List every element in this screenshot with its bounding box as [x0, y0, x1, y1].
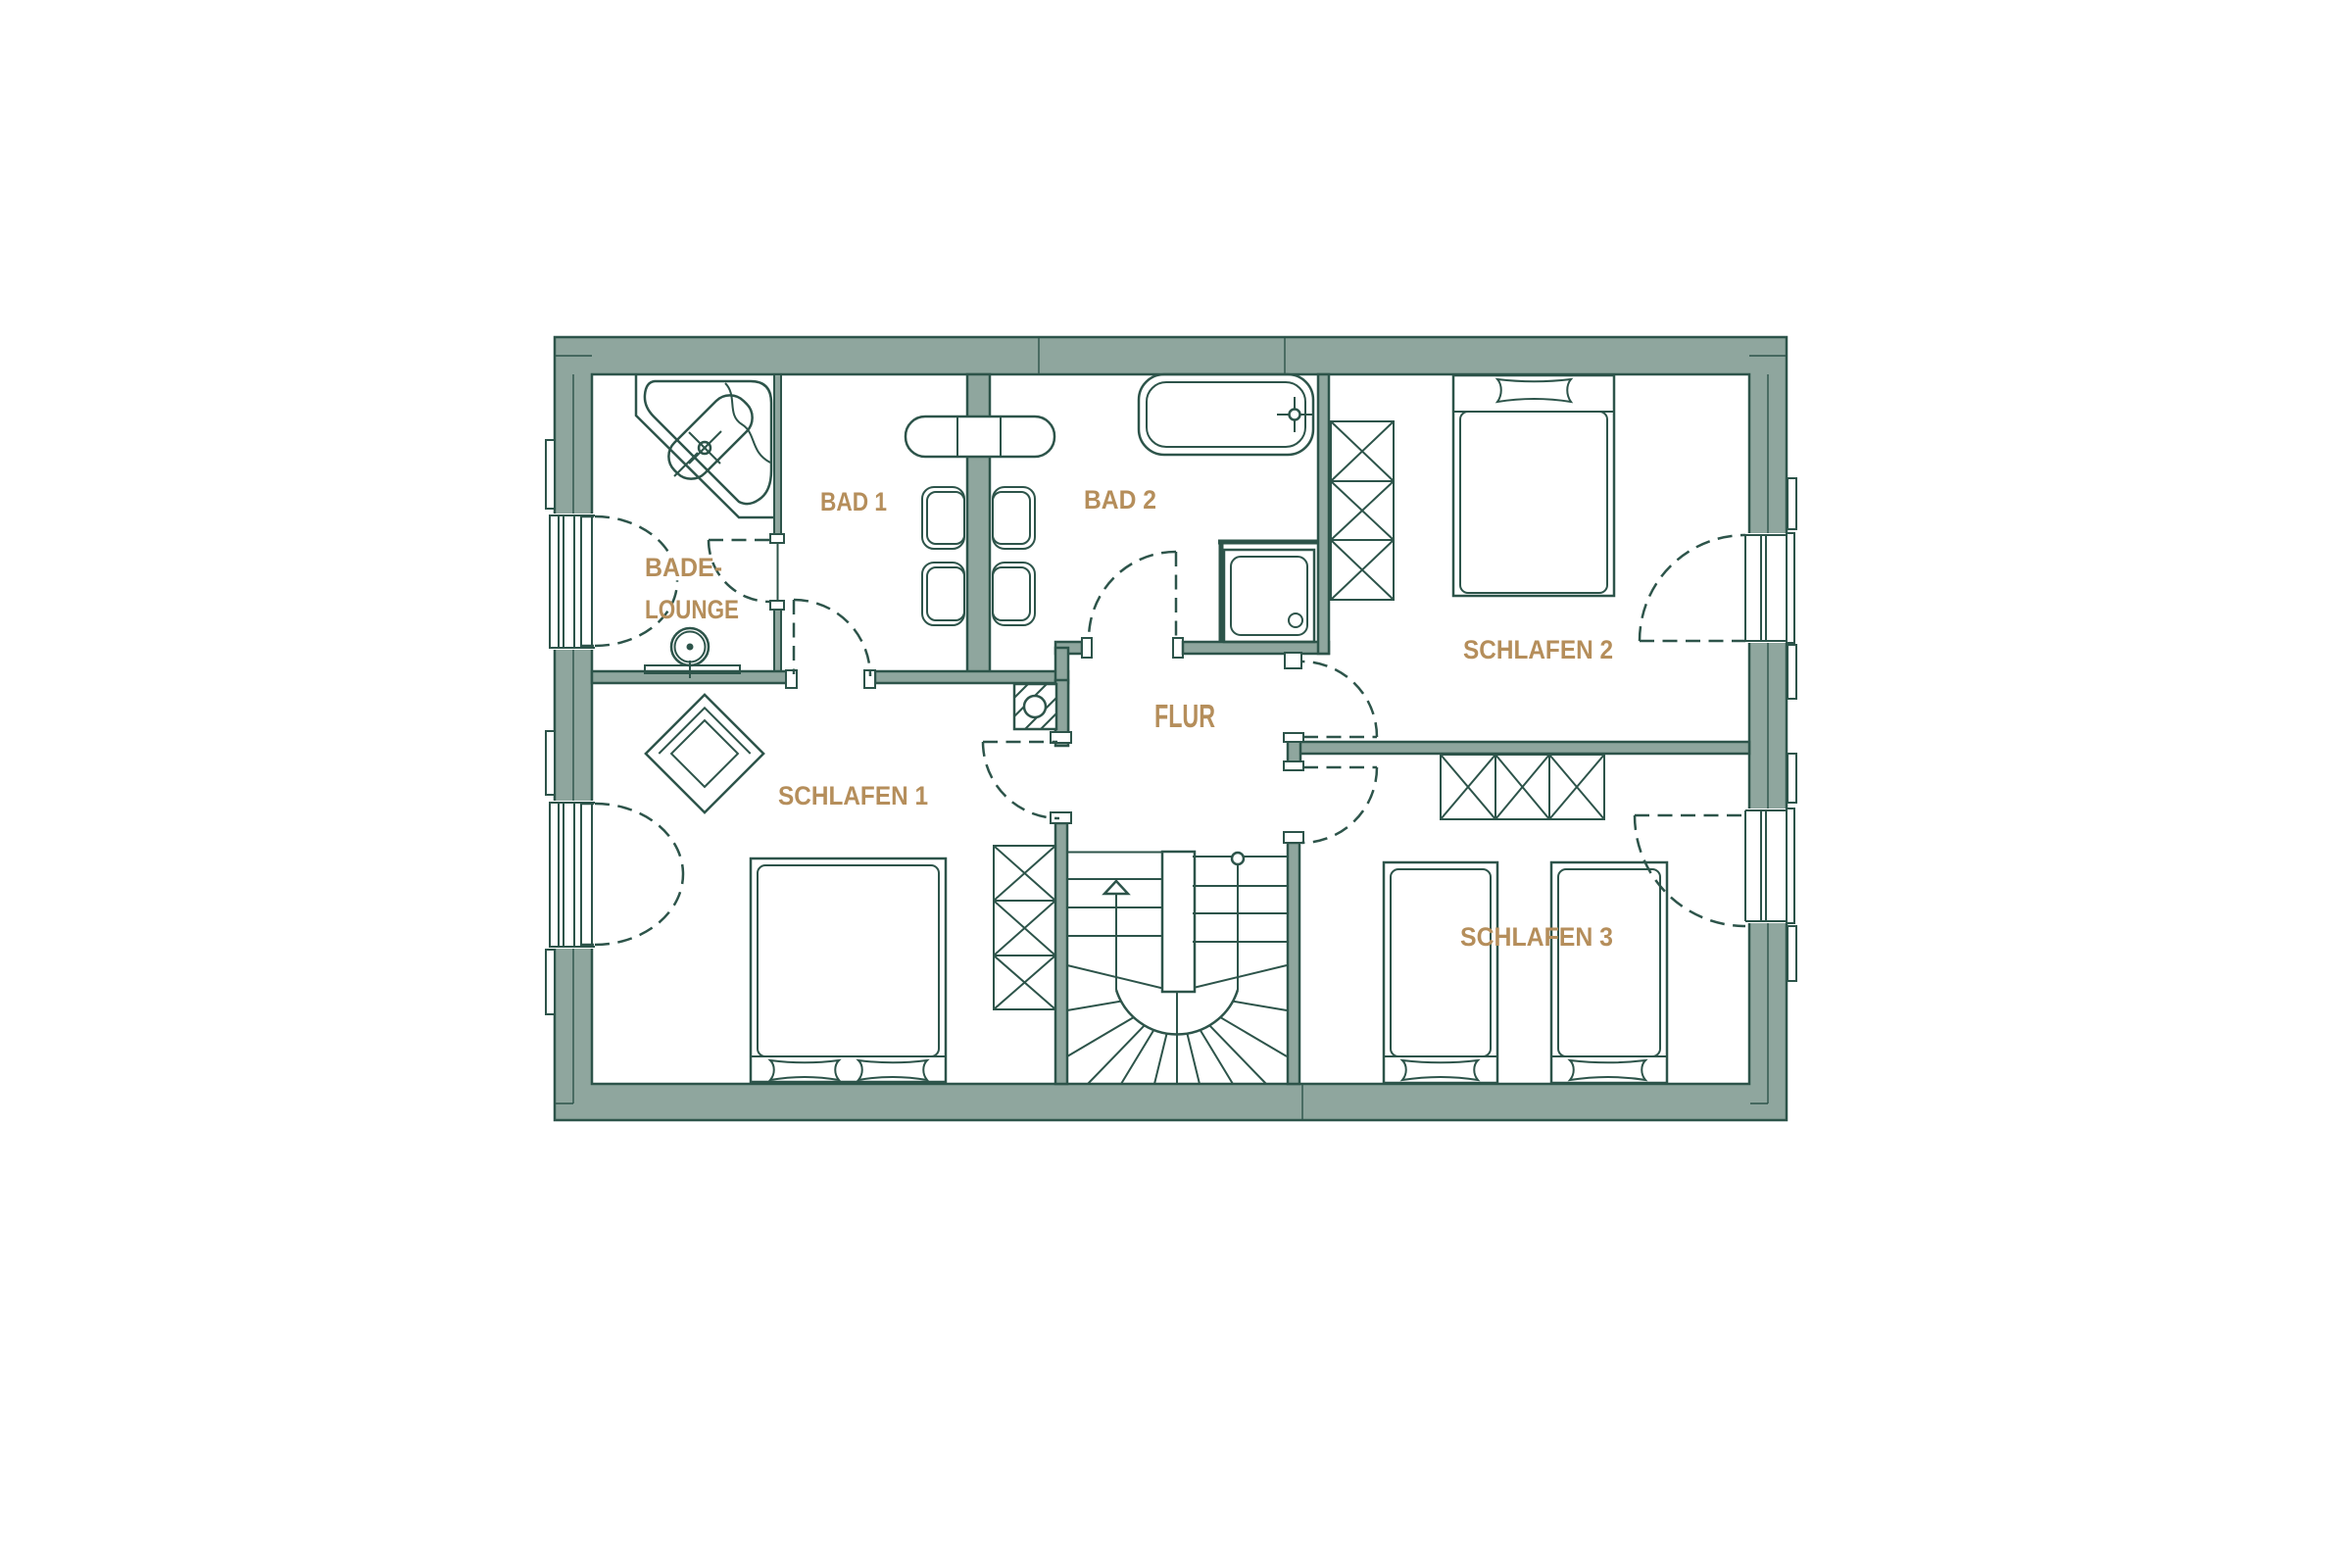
svg-text:SCHLAFEN 2: SCHLAFEN 2: [1463, 635, 1613, 664]
svg-text:SCHLAFEN 1: SCHLAFEN 1: [778, 781, 928, 810]
svg-text:SCHLAFEN 3: SCHLAFEN 3: [1460, 922, 1613, 952]
svg-text:FLUR: FLUR: [1154, 698, 1215, 734]
svg-text:LOUNGE: LOUNGE: [645, 595, 739, 624]
svg-text:BAD 2: BAD 2: [1084, 485, 1156, 514]
svg-text:BADE-: BADE-: [645, 553, 722, 582]
svg-text:BAD 1: BAD 1: [820, 487, 887, 516]
